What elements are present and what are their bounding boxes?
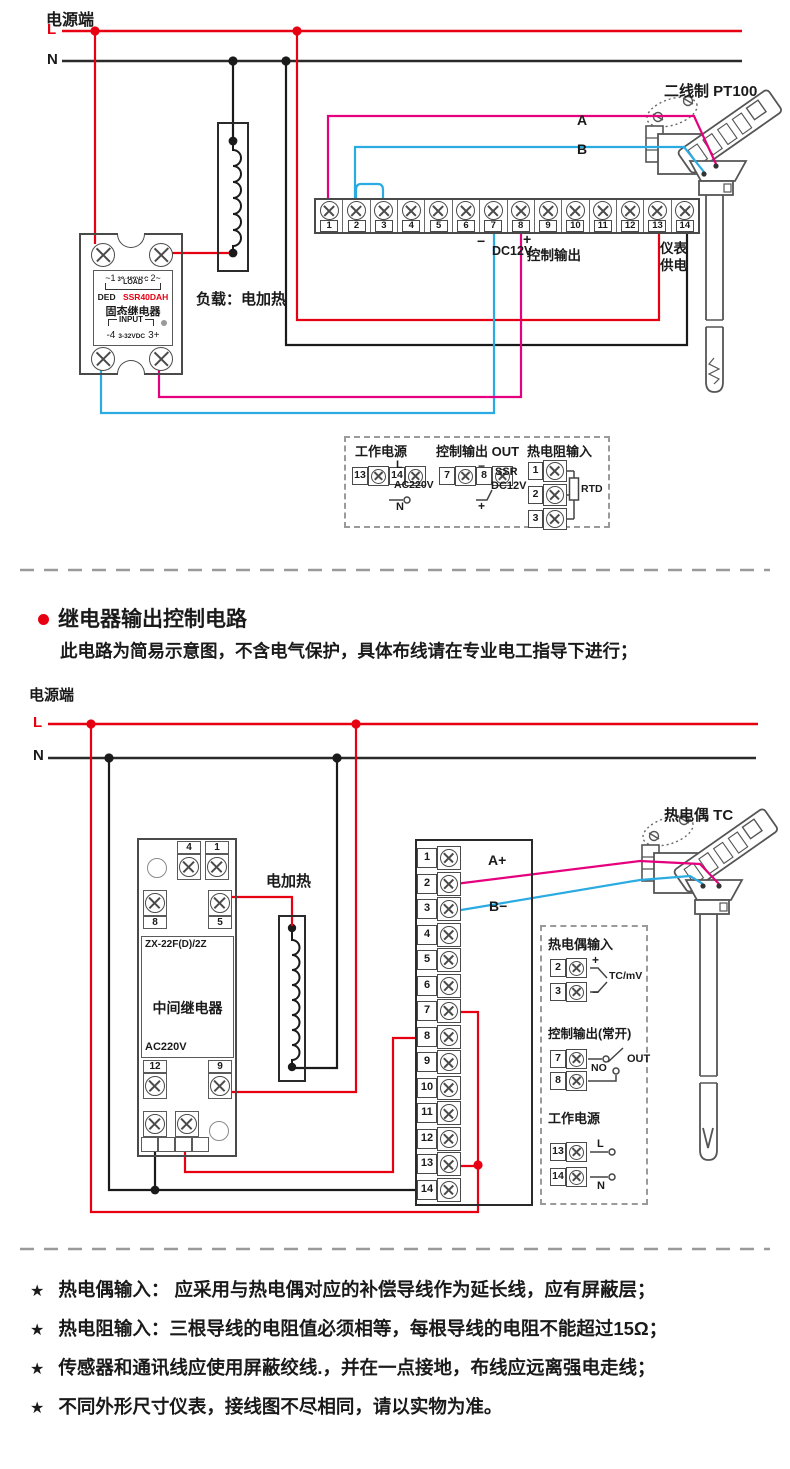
note-item: ★ 热电偶输入： 应采用与热电偶对应的补偿导线作为延长线，应有屏蔽层； [30,1276,770,1302]
screw-terminal-icon [569,1170,584,1185]
terminal-number: 5 [417,950,437,970]
relay-coil-label [175,1137,192,1152]
terminal-number: 6 [417,976,437,996]
screw-terminal-icon [440,926,458,944]
terminal-screw-cell [437,897,461,921]
terminal-row: 8 [417,1025,463,1049]
legend1-l-label: L [396,459,403,471]
wire-a-label: A [577,112,587,128]
terminal-number: 13 [417,1154,437,1174]
screw-terminal-icon [456,201,475,220]
terminal-screw-cell [437,872,461,896]
screw-terminal-icon [429,201,448,220]
screw-terminal-icon [149,347,173,371]
relay-screw-cell [208,890,232,916]
terminal-number: 12 [621,220,639,232]
legend-row: 13 14 [550,1142,587,1192]
terminal-row: 2 [417,872,463,896]
screw-terminal-icon [648,201,667,220]
mounting-hole-icon [147,858,167,878]
n-label-2: N [33,747,44,764]
legend1-out-title: 控制输出 OUT [436,441,519,460]
legend-screw-cell [455,466,476,486]
ssr-relay: ~1 38-480VAC 2~ LOAD DED SSR40DAH 固态继电器 … [79,233,183,375]
terminal-cell: 1 [316,200,343,232]
terminal-cell: 5 [425,200,452,232]
legend-screw-cell [543,508,567,530]
terminal-number: 2 [348,220,366,232]
note-text: 不同外形尺寸仪表，接线图不尽相同，请以实物为准。 [58,1393,502,1419]
meter-supply-label-2: 供电 [660,254,687,274]
ssr-load-bracket: LOAD [121,279,145,286]
screw-terminal-icon [347,201,366,220]
legend2-n-label: N [597,1180,605,1192]
ssr-load-2: 2~ [150,273,160,283]
relay-terminal-label: 12 [143,1060,167,1073]
legend-terminal-number: 13 [352,467,368,485]
terminal-row: 5 [417,948,463,972]
screw-terminal-icon [210,893,230,913]
legend-terminal-number: 1 [528,462,543,480]
legend1-ssr-label: SSR [495,466,518,478]
terminal-cell: 4 [398,200,425,232]
screw-terminal-icon [440,1002,458,1020]
screw-terminal-icon [440,900,458,918]
terminal-screw-cell [437,923,461,947]
dc12v-minus-label: − [477,233,485,249]
terminal-number: 11 [417,1103,437,1123]
terminal-cell: 7 [480,200,507,232]
screw-terminal-icon [569,1145,584,1160]
relay-screw-cell [143,890,167,916]
terminal-number: 10 [417,1078,437,1098]
legend2-tc-title: 热电偶输入 [548,934,613,953]
terminal-row: 7 [417,999,463,1023]
terminal-screw-cell [437,1127,461,1151]
relay-coil-label [141,1137,158,1152]
screw-terminal-icon [210,1076,230,1096]
ctrl-out-label: 控制输出 [527,244,581,264]
terminal-screw-cell [437,846,461,870]
l-to-terminal13-wire [297,31,659,320]
legend-terminal-number: 3 [550,983,566,1001]
wire-b-minus-label: B− [489,898,507,914]
terminal-row: 13 [417,1152,463,1176]
screw-terminal-icon [145,893,165,913]
legend-terminal-number: 2 [528,486,543,504]
terminal-number: 13 [648,220,666,232]
screw-terminal-icon [675,201,694,220]
note-item: ★ 热电阻输入：三根导线的电阻值必须相等，每根导线的电阻不能超过15Ω； [30,1315,770,1341]
terminal-number: 9 [539,220,557,232]
power-terminal-label-2: 电源端 [29,684,74,705]
legend-screw-cell [368,466,389,486]
section2-subheading: 此电路为简易示意图，不含电气保护，具体布线请在专业电工指导下进行； [60,638,638,663]
relay-screw-cell [143,1073,167,1099]
terminal-number: 12 [417,1129,437,1149]
terminal-number: 2 [417,874,437,894]
screw-terminal-icon [145,1114,165,1134]
relay-terminal-label: 1 [205,841,229,854]
terminal-screw-cell [437,1101,461,1125]
legend-row: 7 8 [550,1049,587,1093]
legend-screw-cell [566,982,587,1002]
terminal-strip-2: 1 2 3 4 5 6 7 8 9 10 [417,846,463,1202]
ssr-model: SSR40DAH [123,292,168,302]
terminal-row: 4 [417,923,463,947]
terminal-screw-cell [437,1152,461,1176]
legend2-no-label: NO [591,1062,607,1074]
tc-sensor [639,808,778,1160]
l-label-2: L [33,714,42,731]
terminal-cell: 6 [453,200,480,232]
pt100-sensor-label: 二线制 PT100 [664,80,757,101]
screw-terminal-icon [569,961,584,976]
wiring-diagram-page: 电源端 L N ~1 38-480VAC 2~ LOAD DED SSR40DA… [0,0,790,1469]
screw-terminal-icon [440,1053,458,1071]
star-bullet-icon: ★ [30,1281,44,1301]
star-bullet-icon: ★ [30,1320,44,1340]
legend1-rtd-title: 热电阻输入 [527,441,592,460]
terminal-strip-1: 1 2 3 4 5 6 7 8 9 10 [314,198,700,234]
load-label: 负载：电加热 [196,288,286,309]
screw-terminal-icon [621,201,640,220]
relay-terminal-label: 8 [143,916,167,929]
terminal-screw-cell [437,948,461,972]
star-bullet-icon: ★ [30,1359,44,1379]
terminal-row: 14 [417,1178,463,1202]
screw-terminal-icon [145,1076,165,1096]
screw-terminal-icon [440,1181,458,1199]
ssr-input-volt: 3-32VDC [118,333,145,340]
terminal-number: 9 [417,1052,437,1072]
bullet-icon [38,614,49,625]
relay-coil-label [158,1137,175,1152]
terminal-screw-cell [437,1025,461,1049]
terminal-cell: 13 [644,200,671,232]
legend1-minus-label: − [478,459,485,473]
relay-screw-cell [205,854,229,880]
legend-terminal-number: 2 [550,959,566,977]
terminal-number: 3 [375,220,393,232]
legend1-power-title: 工作电源 [355,441,407,460]
legend-terminal-number: 8 [550,1072,566,1090]
terminal-cell: 12 [617,200,644,232]
terminal-number: 5 [430,220,448,232]
terminal-cell: 2 [343,200,370,232]
screw-terminal-icon [179,857,199,877]
legend-terminal-number: 3 [528,510,543,528]
legend2-l-label: L [597,1138,604,1150]
legend-screw-cell [566,1142,587,1162]
ssr-brand: DED [98,292,116,302]
legend2-plus-label: + [592,953,599,967]
heater-label-2: 电加热 [266,870,311,891]
note-item: ★ 传感器和通讯线应使用屏蔽绞线.，并在一点接地，布线应远离强电走线； [30,1354,770,1380]
terminal-row: 11 [417,1101,463,1125]
terminal-screw-cell [437,999,461,1023]
legend2-power-title: 工作电源 [548,1108,600,1127]
terminal-number: 1 [417,848,437,868]
relay-screw-cell [208,1073,232,1099]
legend-screw-cell [566,1167,587,1187]
legend1-rtd-label: RTD [581,483,603,495]
legend1-dc12v-label: DC12V [491,480,526,492]
legend-terminal-number: 7 [550,1050,566,1068]
section2-heading: 继电器输出控制电路 [58,603,247,633]
note-text: 热电偶输入： 应采用与热电偶对应的补偿导线作为延长线，应有屏蔽层； [58,1276,655,1302]
screw-terminal-icon [440,951,458,969]
terminal-cell: 10 [562,200,589,232]
screw-terminal-icon [440,1079,458,1097]
wire-a-plus-label: A+ [488,852,506,868]
ssr-input-right: 3+ [148,330,159,341]
legend1-ac220v-label: AC220V [394,479,434,491]
relay-label-panel: ZX-22F(D)/2Z 中间继电器 AC220V [141,936,234,1058]
terminal-number: 7 [417,1001,437,1021]
terminal-screw-cell [437,1050,461,1074]
star-bullet-icon: ★ [30,1398,44,1418]
terminal-row: 3 [417,897,463,921]
screw-terminal-icon [207,857,227,877]
legend-row: 2 3 [550,958,587,1006]
terminal-number: 10 [566,220,584,232]
screw-terminal-icon [374,201,393,220]
ssr-input-bracket: INPUT [117,315,145,324]
ssr-load-1: ~1 [105,273,115,283]
terminal-number: 14 [676,220,694,232]
screw-terminal-icon [440,1155,458,1173]
screw-terminal-icon [546,510,564,528]
ssr-plus-wire [159,232,521,397]
screw-terminal-icon [440,849,458,867]
terminal-cell: 3 [371,200,398,232]
legend-screw-cell [566,958,587,978]
relay-name: 中间继电器 [142,998,233,1018]
n-label-1: N [47,51,58,68]
legend-terminal-number: 13 [550,1143,566,1161]
screw-terminal-icon [440,1028,458,1046]
wire-b-label: B [577,141,587,157]
heater-load-1 [217,122,249,272]
screw-terminal-icon [546,462,564,480]
terminal-screw-cell [437,1076,461,1100]
terminal-row: 1 [417,846,463,870]
legend2-tcmv-label: TC/mV [609,970,642,982]
notes-list: ★ 热电偶输入： 应采用与热电偶对应的补偿导线作为延长线，应有屏蔽层； ★ 热电… [30,1276,770,1432]
legend2-minus-label: − [592,985,599,999]
terminal-number: 7 [484,220,502,232]
legend-screw-cell [543,460,567,482]
screw-terminal-icon [177,1114,197,1134]
terminal-row: 10 [417,1076,463,1100]
terminal-cell: 8 [508,200,535,232]
terminal-number: 11 [594,220,612,232]
screw-terminal-icon [91,243,115,267]
terminal-number: 8 [417,1027,437,1047]
terminal-row: 9 [417,1050,463,1074]
legend1-plus-label: + [478,499,485,513]
terminal-number: 14 [417,1180,437,1200]
relay-coil-labels [141,1137,209,1152]
screw-terminal-icon [566,201,585,220]
terminal-number: 3 [417,899,437,919]
terminal-cell: 9 [535,200,562,232]
legend-screw-cell [566,1071,587,1091]
terminal-screw-cell [437,974,461,998]
relay-screw-cell [143,1111,167,1137]
relay-terminal-label: 5 [208,916,232,929]
screw-terminal-icon [402,201,421,220]
ssr-led-icon [161,320,167,326]
legend-screw-cell [543,484,567,506]
screw-terminal-icon [440,977,458,995]
relay-terminal-label: 4 [177,841,201,854]
screw-terminal-icon [371,469,386,484]
screw-terminal-icon [440,875,458,893]
terminal-number: 1 [320,220,338,232]
terminal-row: 6 [417,974,463,998]
note-text: 热电阻输入：三根导线的电阻值必须相等，每根导线的电阻不能超过15Ω； [58,1315,667,1341]
screw-terminal-icon [484,201,503,220]
relay-model: ZX-22F(D)/2Z [145,939,233,950]
legend2-out-title: 控制输出(常开) [548,1023,631,1042]
screw-terminal-icon [569,1074,584,1089]
relay-screw-cell [175,1111,199,1137]
screw-terminal-icon [511,201,530,220]
screw-terminal-icon [546,486,564,504]
screw-terminal-icon [440,1104,458,1122]
screw-terminal-icon [149,243,173,267]
legend-terminal-number: 14 [550,1168,566,1186]
relay-terminal-label: 9 [208,1060,232,1073]
mounting-hole-icon [209,1121,229,1141]
relay-voltage: AC220V [145,1041,187,1053]
legend-screw-cell [566,1049,587,1069]
relay-coil-label [192,1137,209,1152]
terminal-screw-cell [437,1178,461,1202]
note-text: 传感器和通讯线应使用屏蔽绞线.，并在一点接地，布线应远离强电走线； [58,1354,655,1380]
note-item: ★ 不同外形尺寸仪表，接线图不尽相同，请以实物为准。 [30,1393,770,1419]
screw-terminal-icon [593,201,612,220]
screw-terminal-icon [91,347,115,371]
ssr-input-left: -4 [106,330,115,341]
legend2-out-label: OUT [627,1053,650,1065]
legend1-n-label: N [396,501,404,513]
screw-terminal-icon [539,201,558,220]
intermediate-relay: 4 1 8 5 ZX-22F(D)/2Z 中间继电器 AC220V 12 9 [137,838,237,1157]
tc-sensor-label: 热电偶 TC [664,804,733,825]
terminal-number: 4 [402,220,420,232]
l-label-1: L [47,21,56,38]
terminal-number: 6 [457,220,475,232]
terminal-row: 12 [417,1127,463,1151]
ssr-label-panel: ~1 38-480VAC 2~ LOAD DED SSR40DAH 固态继电器 … [93,270,173,346]
heater-load-2 [278,915,306,1082]
screw-terminal-icon [440,1130,458,1148]
legend-terminal-number: 7 [439,467,455,485]
relay-screw-cell [177,854,201,880]
terminal-cell: 14 [672,200,698,232]
legend-row: 1 2 3 [528,460,567,532]
screw-terminal-icon [569,985,584,1000]
screw-terminal-icon [569,1052,584,1067]
terminal-number: 4 [417,925,437,945]
screw-terminal-icon [458,469,473,484]
screw-terminal-icon [320,201,339,220]
terminal-cell: 11 [590,200,617,232]
